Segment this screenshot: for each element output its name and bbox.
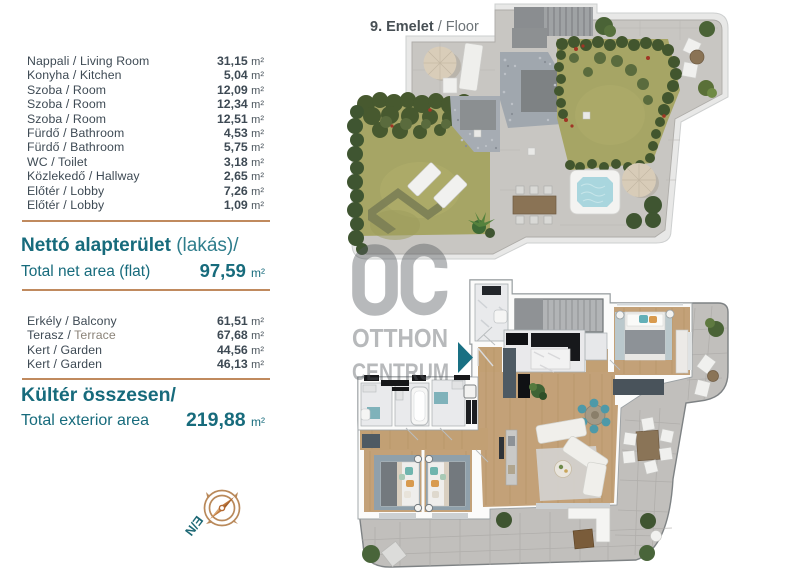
svg-text:OTTHON: OTTHON xyxy=(352,323,448,353)
svg-text:E/N: E/N xyxy=(182,513,206,538)
svg-text:CENTRUM: CENTRUM xyxy=(352,359,449,386)
